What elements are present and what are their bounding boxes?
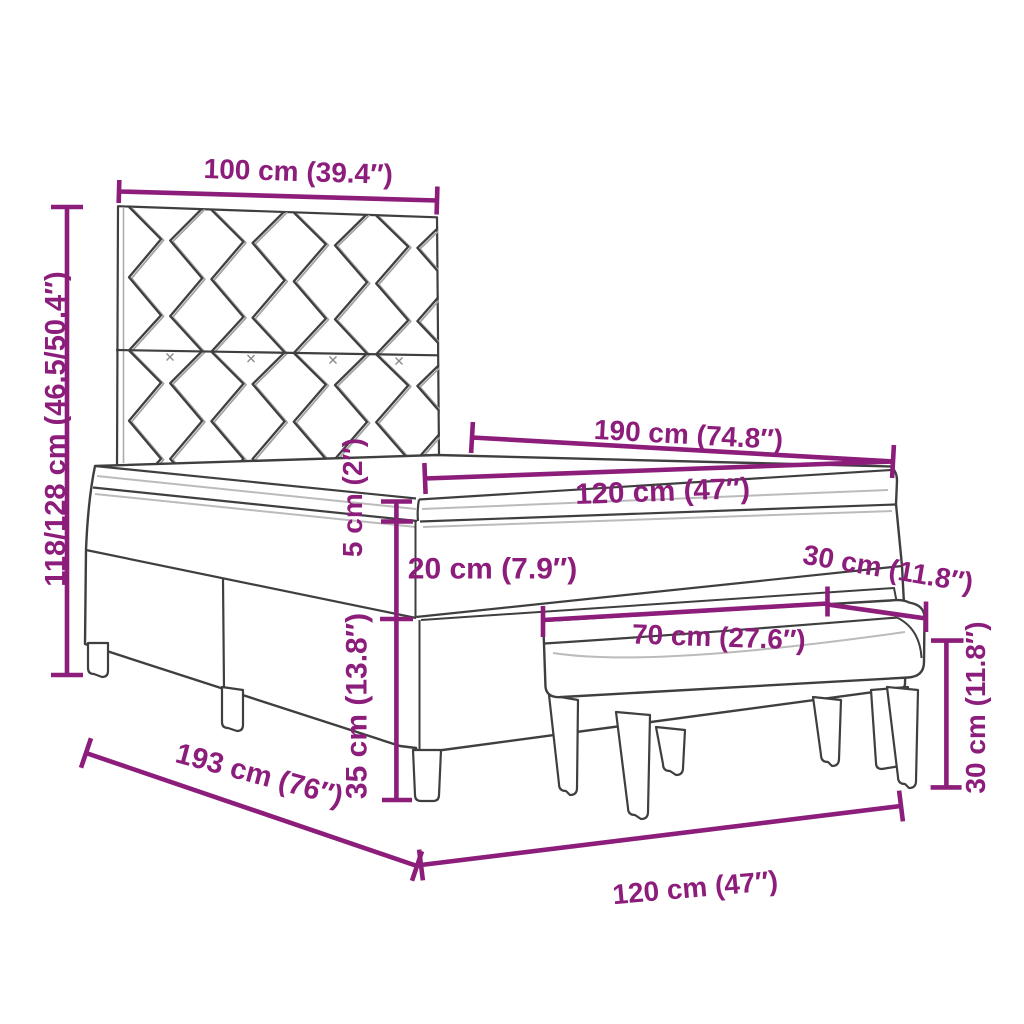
- svg-text:118/128 cm (46.5/50.4″): 118/128 cm (46.5/50.4″): [40, 271, 72, 586]
- svg-text:35 cm (13.8″): 35 cm (13.8″): [341, 613, 374, 799]
- svg-text:20 cm (7.9″): 20 cm (7.9″): [408, 553, 577, 586]
- svg-text:30 cm (11.8″): 30 cm (11.8″): [960, 621, 991, 793]
- svg-text:5 cm (2″): 5 cm (2″): [337, 438, 368, 557]
- svg-text:100 cm (39.4″): 100 cm (39.4″): [203, 153, 393, 190]
- svg-text:120 cm (47″): 120 cm (47″): [575, 472, 751, 511]
- svg-text:70 cm (27.6″): 70 cm (27.6″): [631, 618, 806, 655]
